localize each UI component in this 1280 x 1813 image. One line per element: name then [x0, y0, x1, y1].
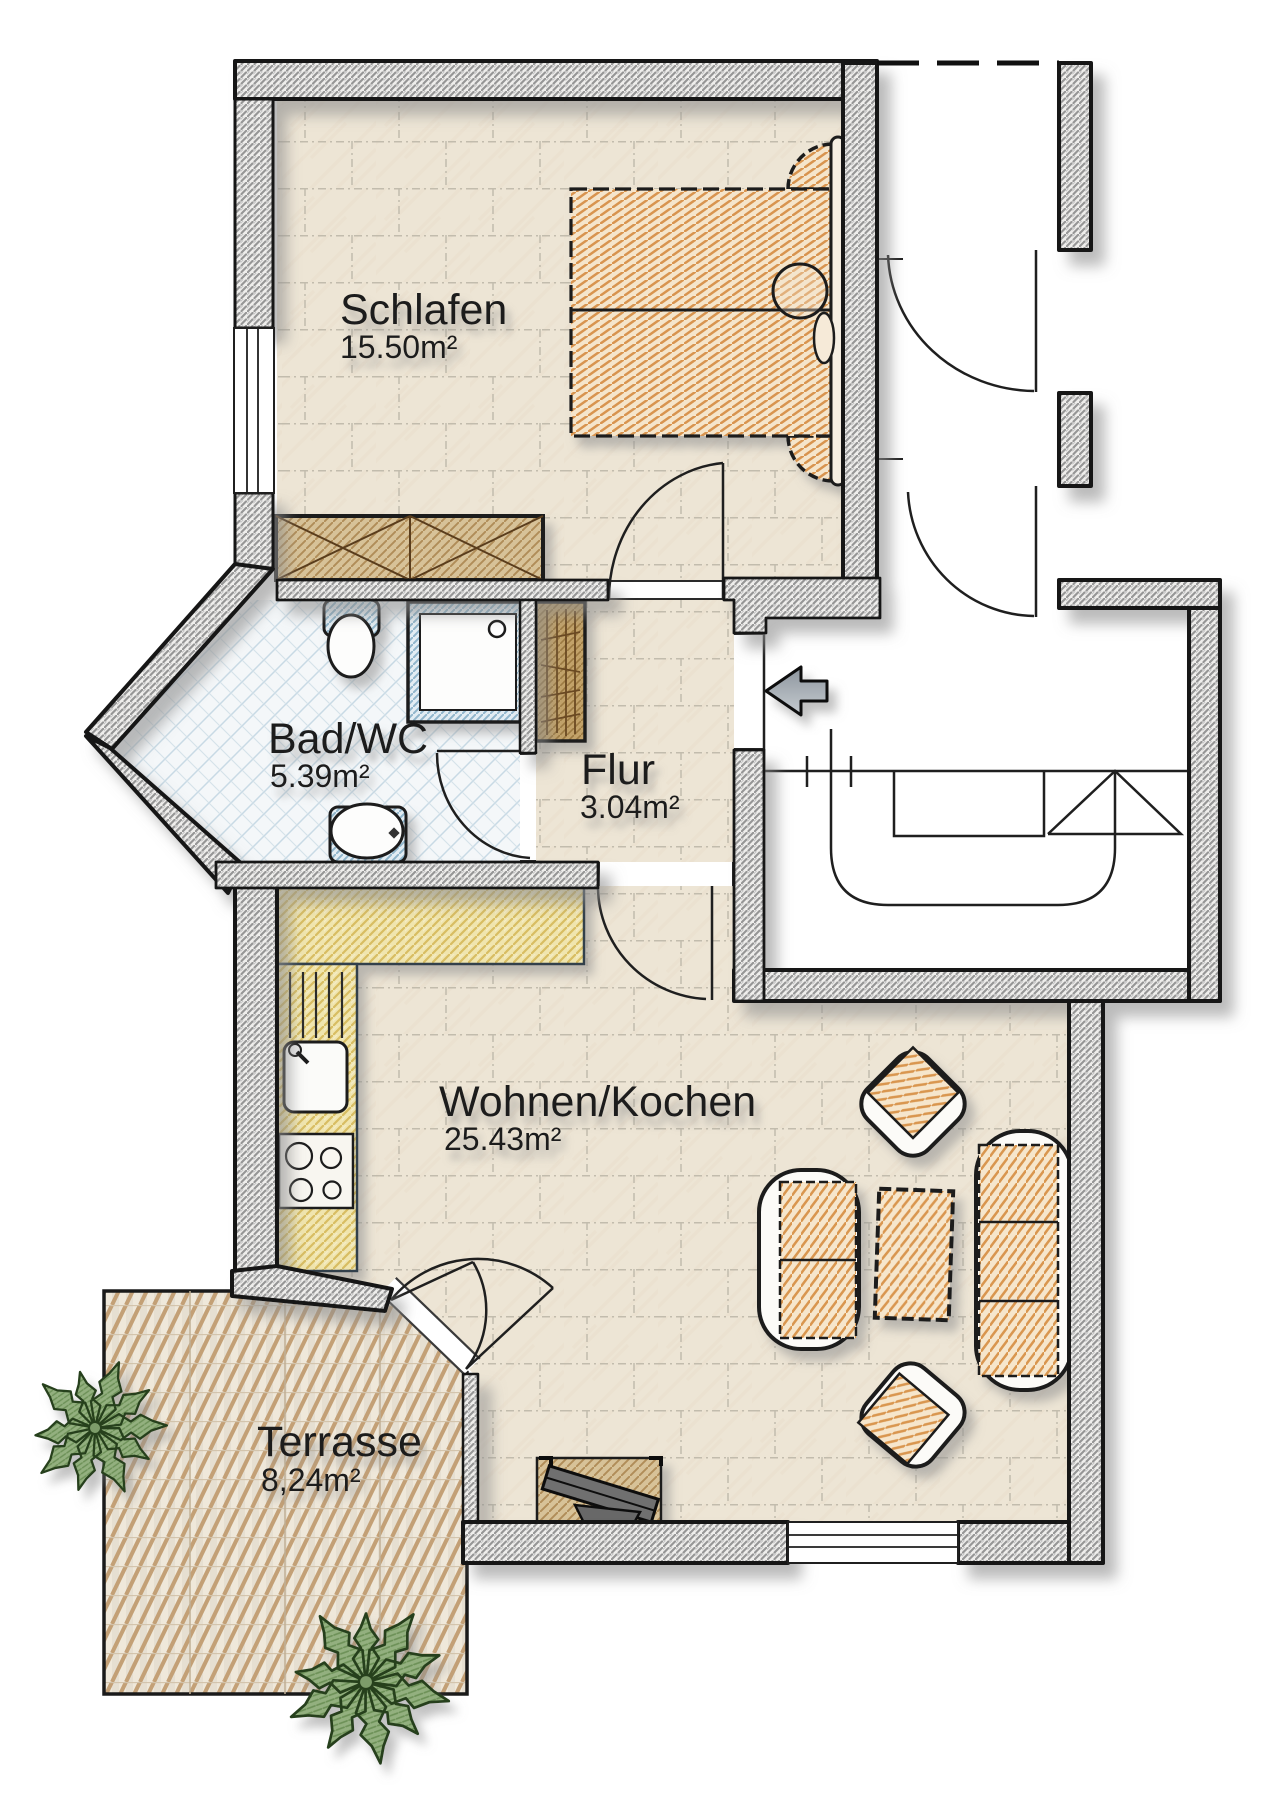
svg-text:8,24m²: 8,24m²: [261, 1462, 361, 1498]
svg-text:25.43m²: 25.43m²: [444, 1121, 562, 1157]
svg-text:Wohnen/Kochen: Wohnen/Kochen: [439, 1078, 756, 1126]
svg-text:15.50m²: 15.50m²: [340, 329, 458, 365]
svg-text:Bad/WC: Bad/WC: [268, 715, 428, 763]
svg-text:Flur: Flur: [581, 746, 655, 794]
svg-text:Terrasse: Terrasse: [257, 1418, 422, 1466]
svg-text:5.39m²: 5.39m²: [270, 758, 370, 794]
svg-text:3.04m²: 3.04m²: [580, 789, 680, 825]
svg-text:Schlafen: Schlafen: [340, 286, 507, 334]
